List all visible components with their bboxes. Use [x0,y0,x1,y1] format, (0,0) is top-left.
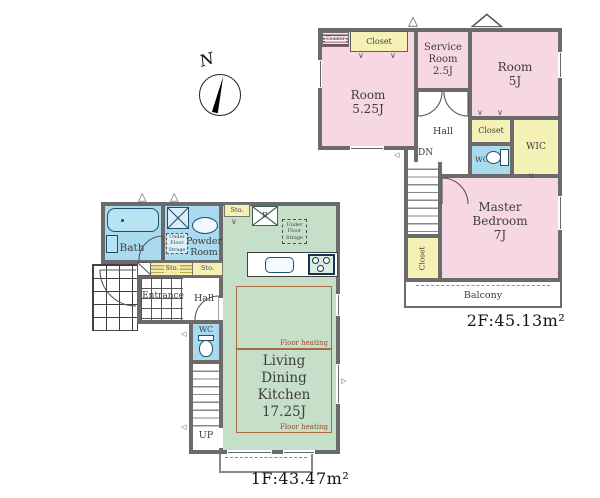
door-opening [219,428,223,448]
hall-1f-label: Hall [184,293,224,304]
under-floor-storage-kitchen: Under Floor Strage [282,219,307,244]
floor-plan-page: N Room 5.25J Counter Closet ∨ ∨ Service … [0,0,600,498]
service-room: Service Room 2.5J [414,28,472,92]
vent-mark: ◁ [394,152,399,159]
roof-vent-icon: △ [170,191,178,202]
powder-room-label: Powder Room [185,236,223,258]
wall-strip [189,450,223,454]
wall-patch [404,148,408,166]
compass-north-label: N [198,49,217,71]
storage-2: Sto. [192,262,223,276]
closet-door-mark: ∨ [497,109,503,117]
closet-2f-top: Closet [350,31,408,52]
window [350,146,384,150]
room-5-label: Room 5J [498,60,533,88]
closet-door-mark: ∨ [477,109,483,117]
window [318,60,322,88]
area-1f-label: 1F:43.47m² [220,469,380,488]
closet-2f-top-label: Closet [366,37,392,46]
burner-icon [323,257,330,264]
area-2f-label: 2F:45.13m² [436,311,596,330]
washer-pan-icon [167,207,189,229]
entrance-label: Entrance [135,291,191,302]
floor-heating-2-label: Floor heating [280,423,328,431]
storage-1-label: Sto. [164,265,181,273]
vent-mark: ◁ [181,331,186,338]
wc-1f-label: WC [189,325,223,334]
closet-2f-low: Closet [404,234,442,282]
closet-door-mark: ∨ [390,52,396,60]
master-bedroom-label: Master Bedroom 7J [472,200,527,256]
toilet-icon [486,151,501,164]
burner-icon [312,257,319,264]
window [336,364,340,404]
door-opening [219,298,223,320]
bathtub-icon [107,208,159,232]
fridge-icon: R [252,206,278,226]
bath-label: Bath [112,242,152,254]
storage-2-label: Sto. [201,265,214,273]
service-room-label: Service Room 2.5J [424,42,462,77]
under-floor-storage-label: Under Floor Strage [169,234,186,253]
fridge-label: R [262,211,268,220]
kitchen-sink-icon [265,257,294,273]
roof-vent-icon: △ [470,11,503,29]
window [283,450,315,454]
wic-door-mark: ∨ [528,172,534,180]
roof-vent-icon: △ [138,191,146,202]
floor-heating-zone-1: Floor heating [236,286,332,349]
under-floor-storage-kitchen-label: Under Floor Strage [286,222,303,241]
porch-tiles [92,264,138,331]
bathtub-drain [121,219,124,222]
storage-kitchen: Sto. [224,204,250,217]
wic: WIC [510,116,562,178]
closet-2f-mid-label: Closet [478,126,504,135]
counter-label: Counter [325,37,346,42]
closet-door-mark: ∨ [358,52,364,60]
hall-2f-label: Hall [414,126,472,137]
balcony-label: Balcony [406,290,560,301]
closet-2f-low-label: Closet [419,246,428,270]
dn-label: DN [418,148,433,159]
window [336,294,340,316]
counter-box: Counter [322,32,349,47]
storage-1: Sto. [150,262,194,276]
window [227,450,272,454]
ldk-label: Living Dining Kitchen 17.25J [236,353,332,421]
up-label: UP [191,430,221,441]
window [558,196,562,230]
storage-kitchen-label: Sto. [231,207,244,215]
roof-vent-icon: △ [408,15,418,28]
washbasin-icon [192,217,218,234]
balcony: Balcony [404,278,562,308]
toilet-icon [199,340,213,357]
stairs-1f [189,360,223,428]
balcony-dashed-line [416,285,550,286]
toilet-tank-icon [500,149,509,166]
stairs-2f [404,162,442,238]
room-5: Room 5J [468,28,562,120]
burner-icon [317,265,324,272]
wic-label: WIC [526,142,546,153]
terrace-dashed-line [225,457,307,458]
storage-door-mark: ∨ [231,218,237,226]
window [558,52,562,78]
master-bedroom: Master Bedroom 7J [438,174,562,282]
vent-mark: ▷ [341,378,346,385]
room-525-label: Room 5.25J [351,62,386,116]
vent-mark: ◁ [181,424,186,431]
floor-heating-1-label: Floor heating [280,339,328,347]
